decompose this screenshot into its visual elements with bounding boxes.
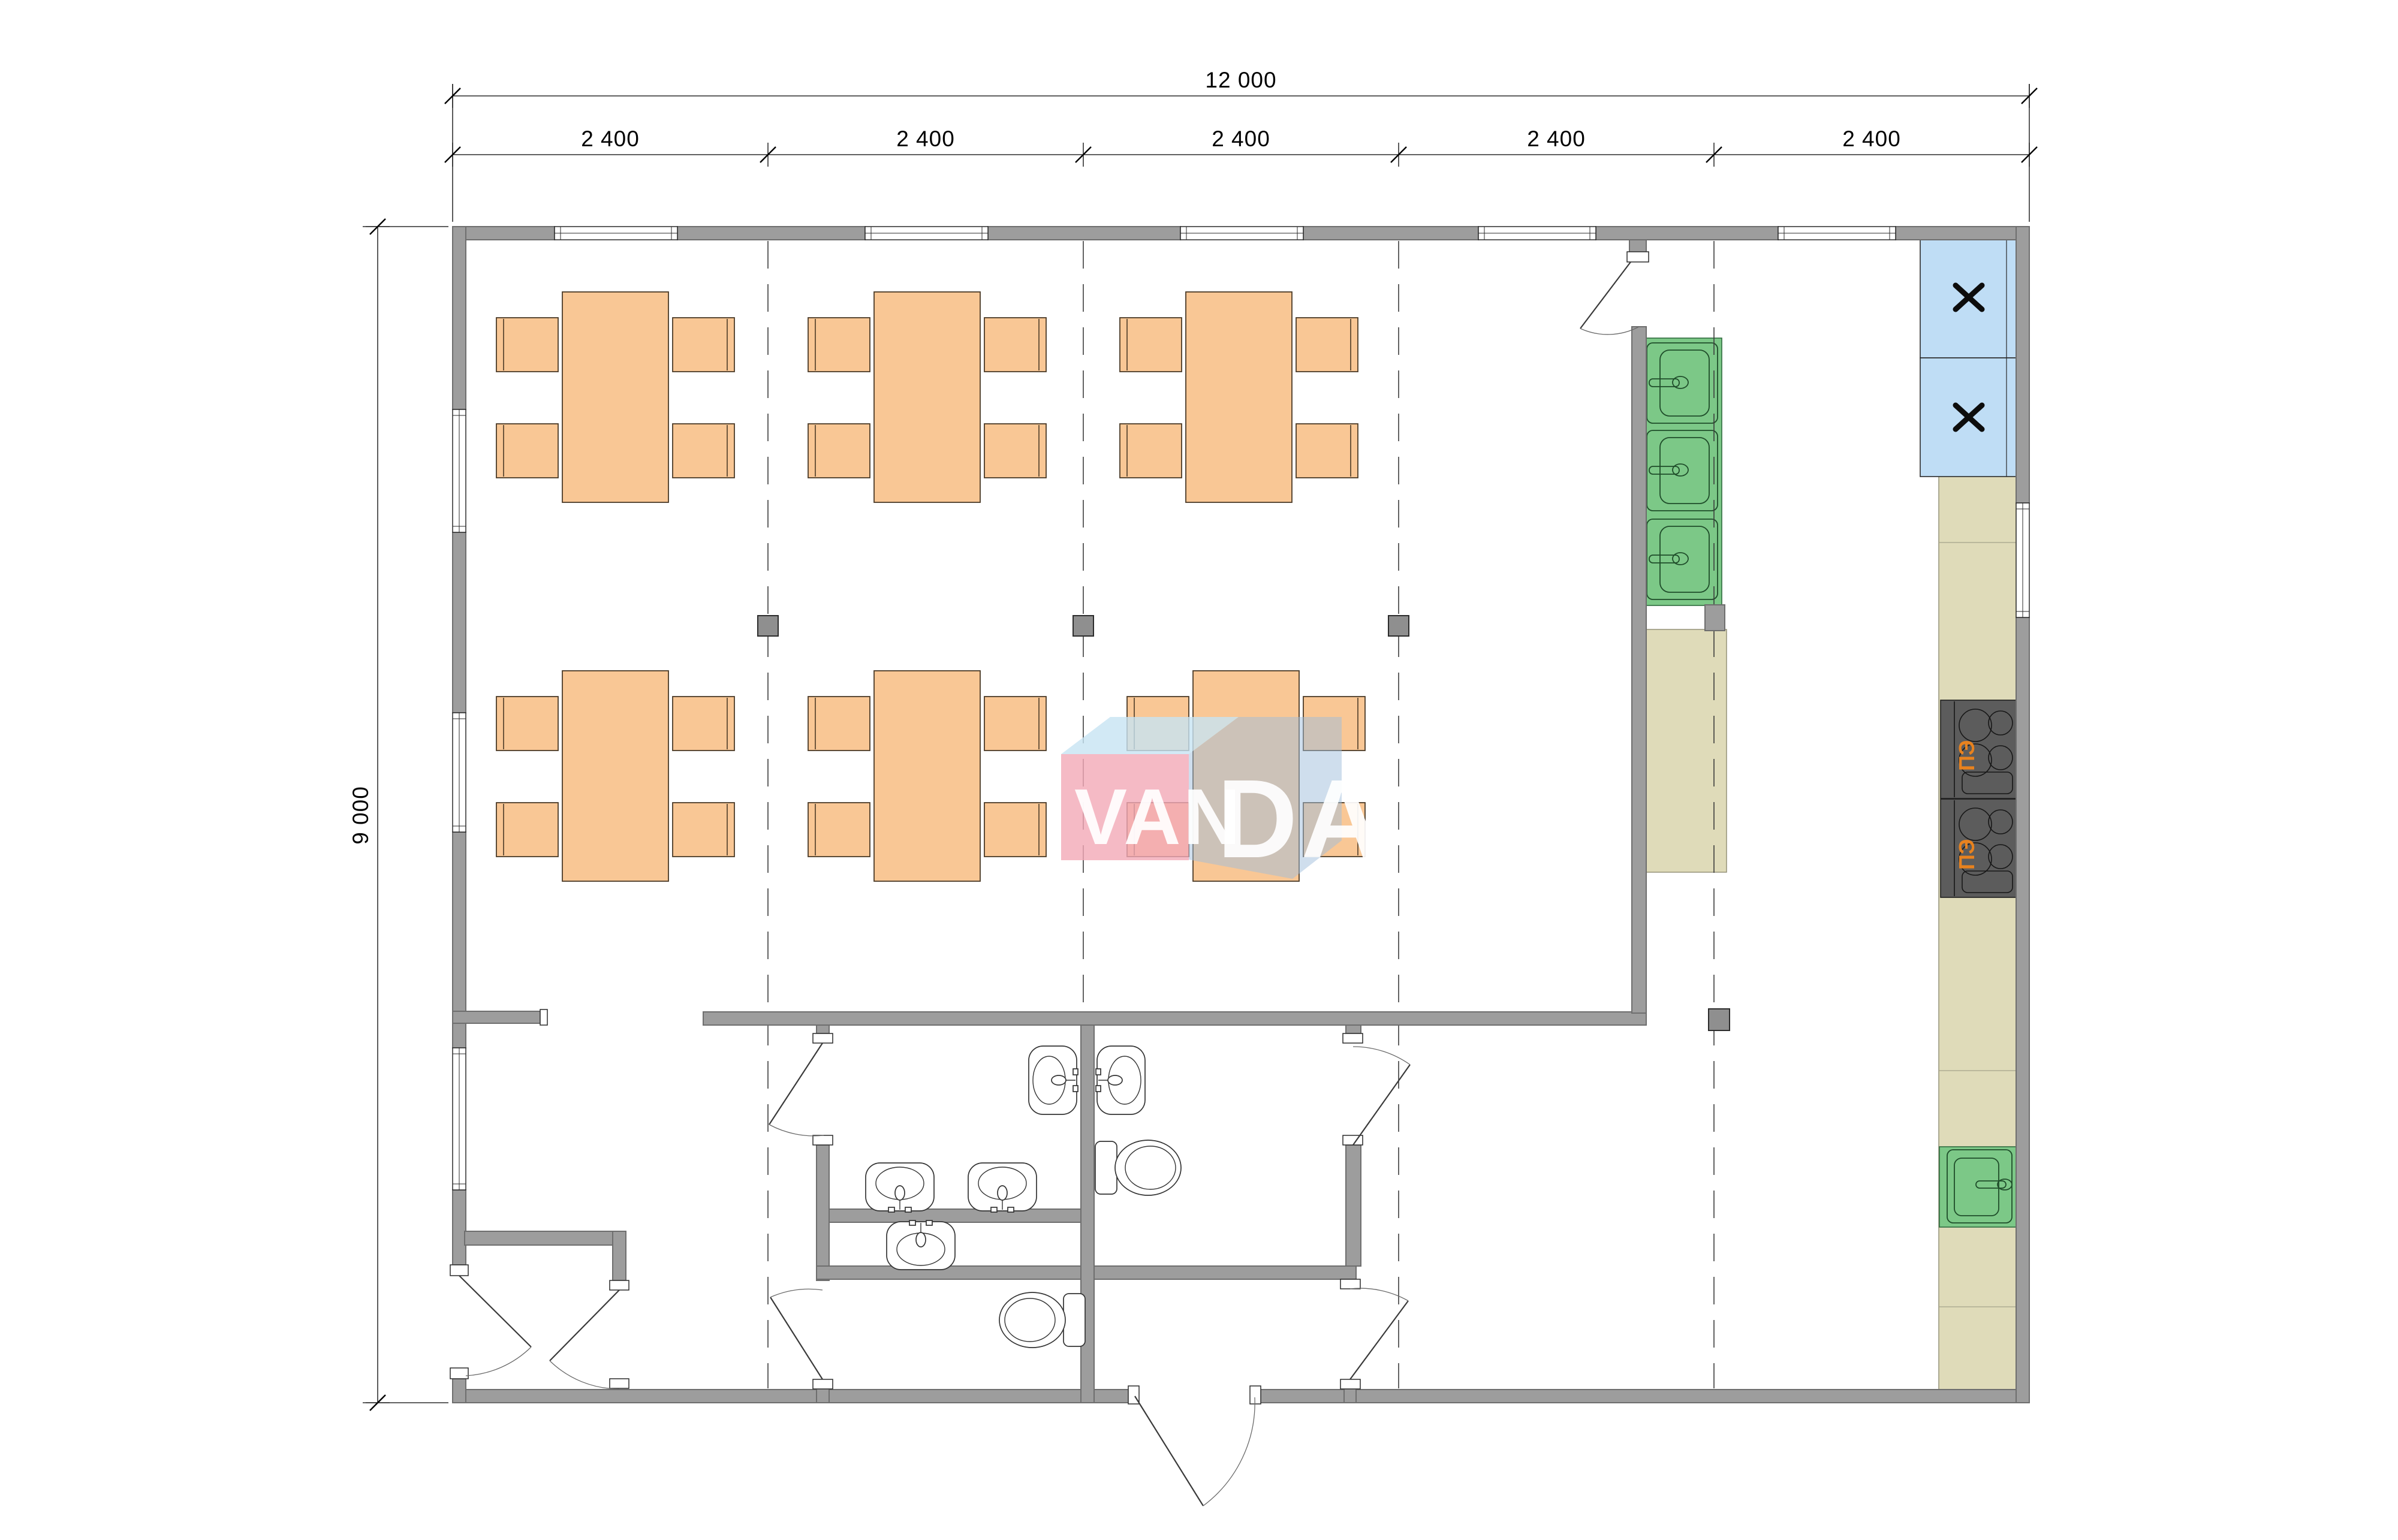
window	[555, 227, 677, 240]
wall-segment	[1081, 1025, 1094, 1403]
door-jamb	[813, 1033, 833, 1043]
door-jamb	[1250, 1386, 1261, 1404]
floor-plan-canvas: ПЭ 12 000 2 400 2 400 2 400 2 400 2 40	[0, 0, 2398, 1540]
wall-segment	[703, 1012, 1646, 1025]
wall-segment	[1344, 1388, 1356, 1403]
wall-segment	[453, 1190, 466, 1265]
door-jamb	[1343, 1033, 1363, 1043]
door-jamb	[813, 1379, 833, 1389]
wall-segment	[817, 1025, 829, 1033]
door-jamb	[1343, 1135, 1363, 1145]
sanitary-fixtures	[866, 1046, 1181, 1348]
door-jamb	[450, 1368, 468, 1379]
door-swing-entrance	[1135, 1396, 1255, 1506]
door-swing	[770, 1289, 823, 1379]
door-swing	[1350, 1288, 1408, 1379]
module-label-4: 2 400	[1527, 126, 1586, 151]
column-post	[1073, 616, 1093, 636]
window	[453, 409, 466, 532]
wall-segment	[453, 1379, 466, 1403]
wall-segment	[1254, 1390, 2029, 1403]
wall-segment	[1896, 227, 2029, 240]
window	[453, 1048, 466, 1190]
wall-segment	[817, 1145, 829, 1280]
door-jamb	[1340, 1379, 1360, 1389]
cold-cabinets	[1920, 240, 2016, 477]
column-post	[1388, 616, 1409, 636]
wall-segment	[1632, 327, 1646, 1013]
watermark-text-part2: DA	[1217, 757, 1385, 881]
stove-block	[1941, 700, 2016, 897]
module-label-2: 2 400	[896, 126, 955, 151]
wall-segment	[453, 532, 466, 713]
wall-segment	[677, 227, 865, 240]
wall-segment	[453, 1390, 1132, 1403]
wall-segment	[453, 227, 555, 240]
window	[1478, 227, 1596, 240]
wall-segment	[613, 1231, 626, 1280]
counter	[1644, 629, 1727, 872]
column-post	[758, 616, 778, 636]
wall-segment	[1596, 227, 1778, 240]
wall-segment	[1629, 240, 1646, 253]
kitchen-counter-strip	[1939, 471, 2016, 1397]
door-jamb	[610, 1379, 629, 1388]
wall-segment	[453, 227, 466, 409]
door-swing	[769, 1043, 824, 1136]
window	[453, 713, 466, 832]
door-jamb	[1627, 252, 1649, 262]
door-jamb	[1340, 1279, 1360, 1289]
door-jamb	[813, 1135, 833, 1145]
wall-segment	[465, 1231, 625, 1245]
column-post	[1709, 1009, 1730, 1030]
door-jamb	[610, 1280, 629, 1290]
wall-segment	[2016, 617, 2029, 1403]
height-label: 9 000	[348, 786, 373, 845]
single-sink-unit	[1939, 1147, 2024, 1227]
door-swing	[459, 1276, 531, 1376]
vanda-watermark: VAN DA	[1061, 717, 1385, 881]
module-label-5: 2 400	[1842, 126, 1901, 151]
wall-segment	[988, 227, 1180, 240]
window	[865, 227, 988, 240]
wall-segment	[817, 1388, 829, 1403]
window	[1778, 227, 1896, 240]
wall-segment	[1705, 605, 1725, 631]
window	[1180, 227, 1303, 240]
wall-segment	[1346, 1025, 1361, 1033]
wall-segment	[829, 1209, 1088, 1222]
door-swing	[550, 1290, 619, 1389]
door-jamb	[450, 1265, 468, 1276]
wall-end-cap	[540, 1009, 547, 1025]
door-swing	[1580, 262, 1639, 334]
window	[2016, 503, 2029, 617]
counter	[1939, 471, 2016, 1397]
module-label-1: 2 400	[581, 126, 640, 151]
wall-segment	[1346, 1145, 1361, 1266]
total-width-label: 12 000	[1205, 68, 1276, 92]
door-swing	[1353, 1047, 1410, 1145]
wall-segment	[2016, 227, 2029, 503]
wall-segment	[1303, 227, 1478, 240]
wall-segment	[453, 1011, 544, 1023]
module-label-3: 2 400	[1212, 126, 1270, 151]
